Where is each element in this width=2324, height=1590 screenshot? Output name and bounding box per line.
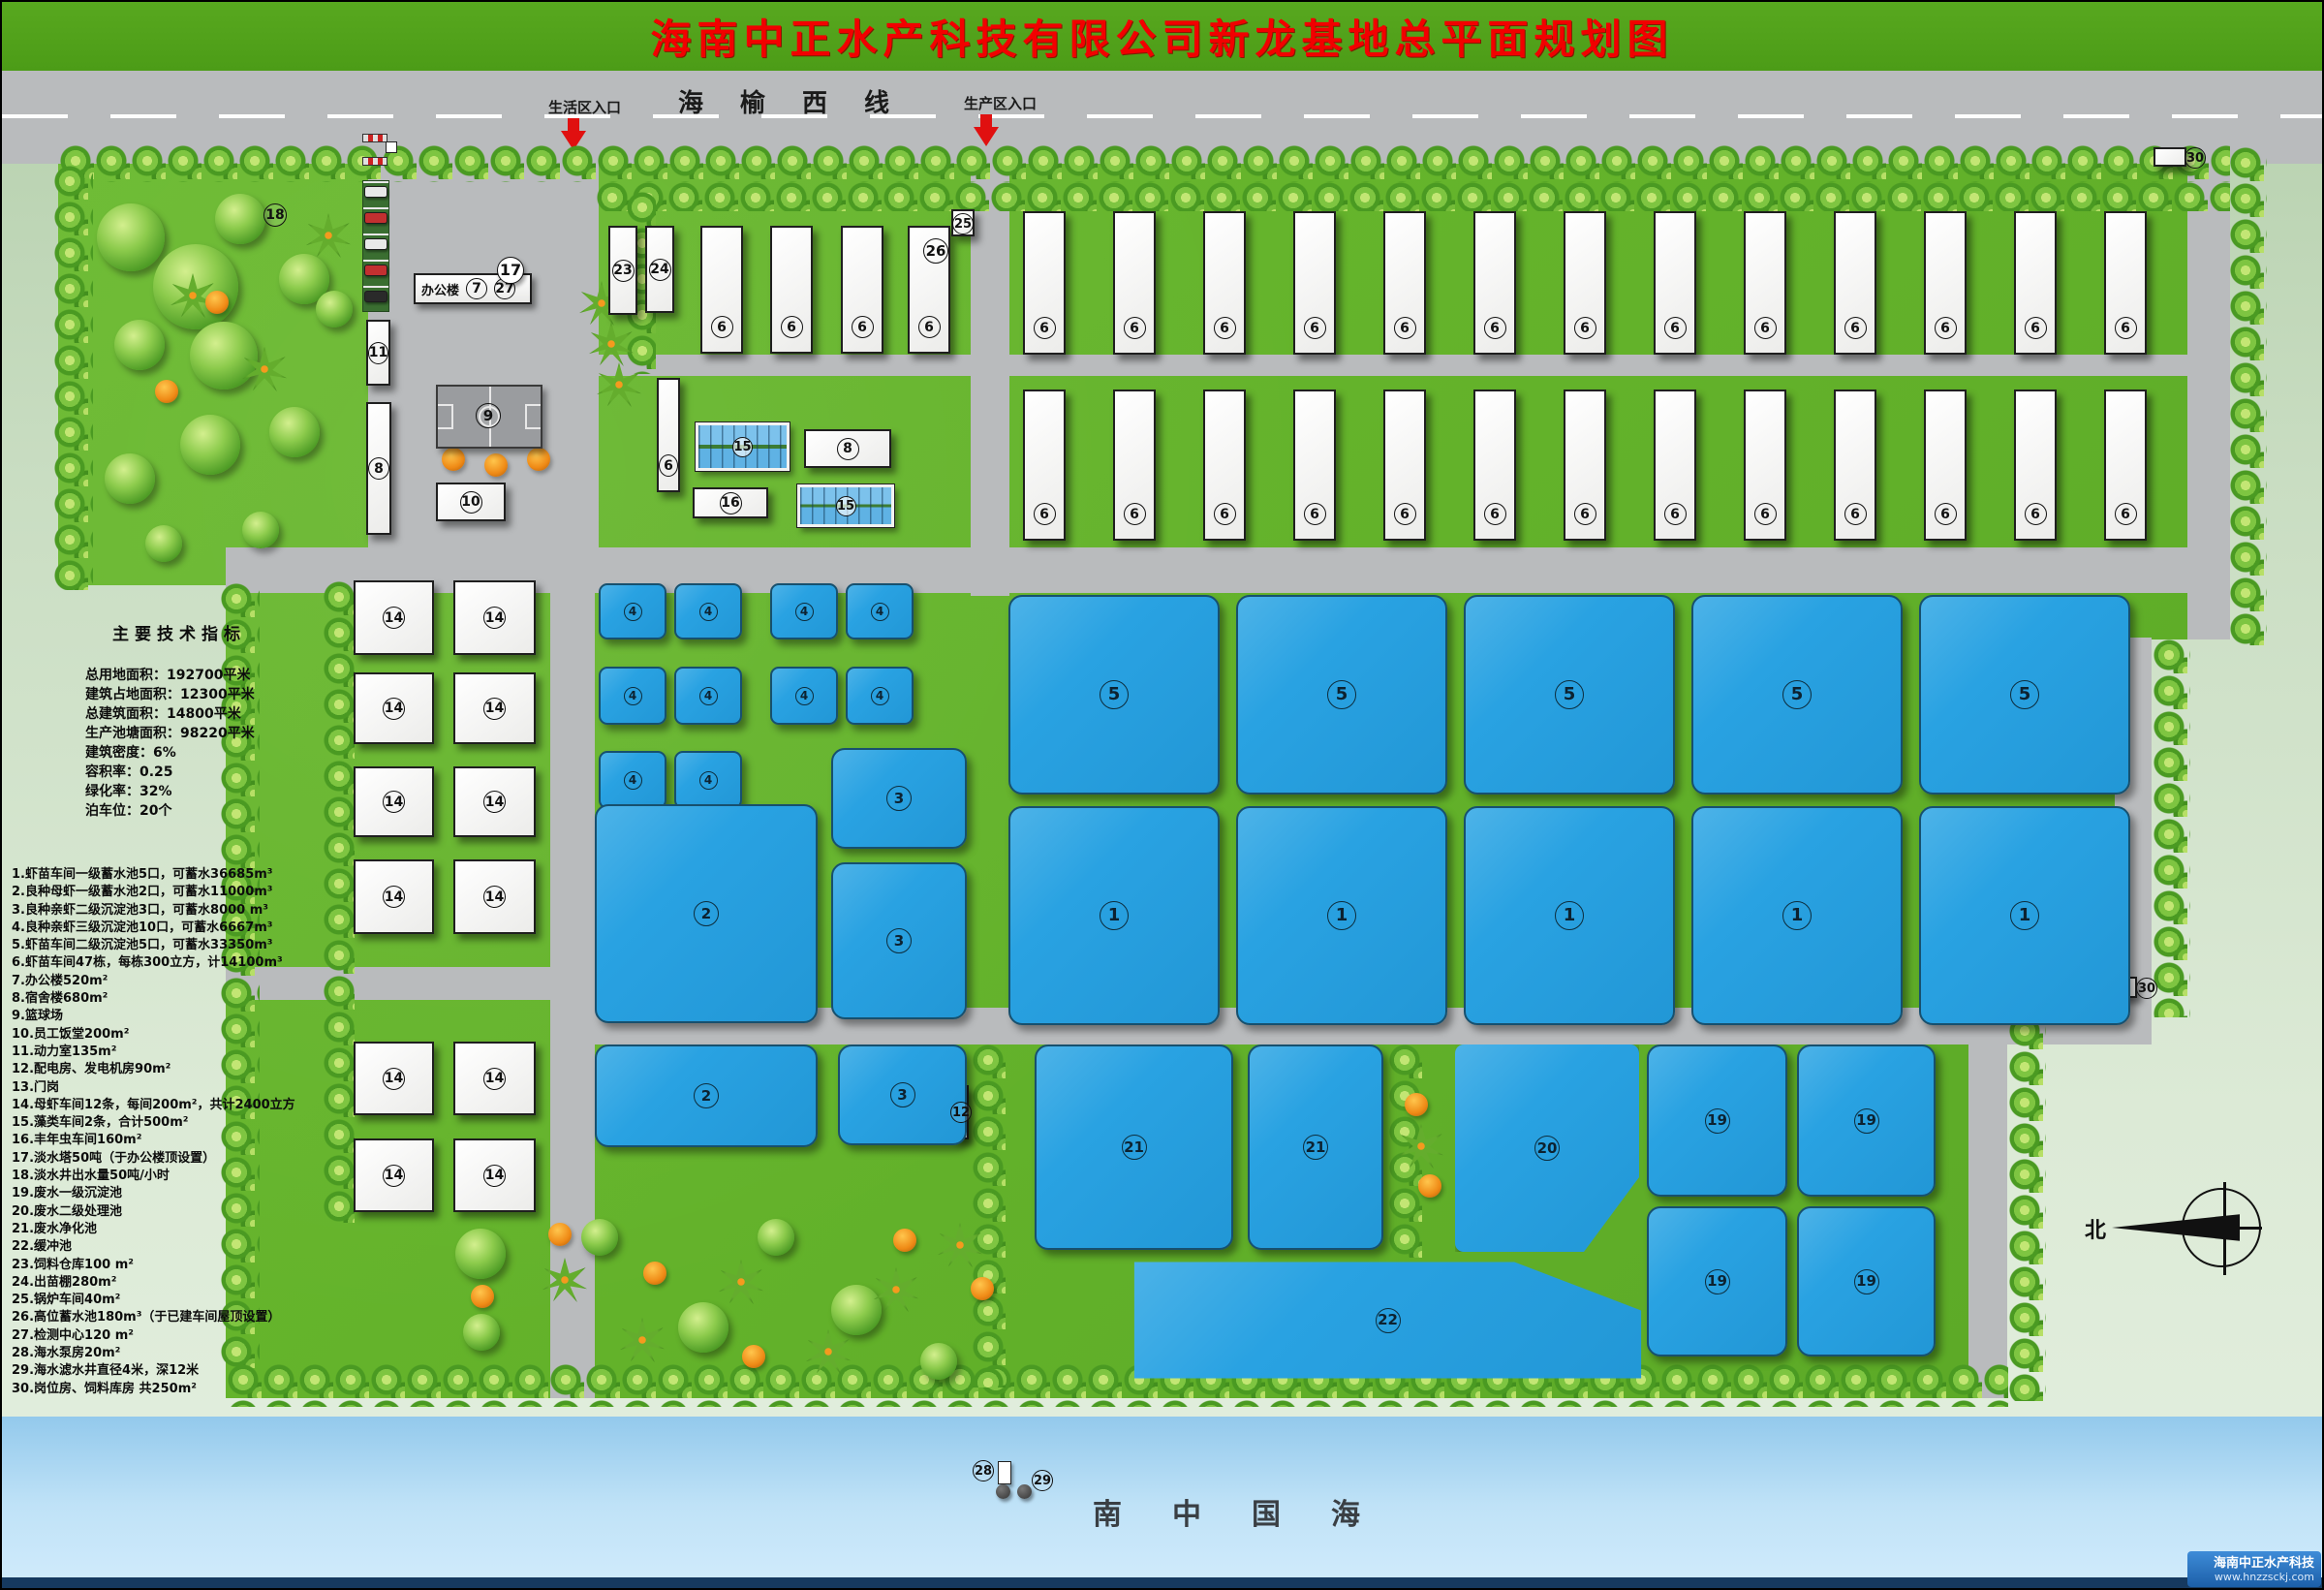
pond-22: 22 <box>1124 1260 1652 1381</box>
number-badge-2: 2 <box>694 1083 719 1108</box>
tech-indicator-line: 总建筑面积：14800平米 <box>85 704 255 724</box>
building-14: 14 <box>453 1042 536 1115</box>
number-badge-15: 15 <box>836 496 856 516</box>
compass-north-label: 北 <box>2085 1213 2106 1244</box>
number-badge-21: 21 <box>1122 1135 1147 1160</box>
legend-item: 24.出苗棚280m² <box>12 1274 295 1292</box>
number-badge-30: 30 <box>2185 147 2206 169</box>
number-badge-23: 23 <box>612 260 635 282</box>
number-badge-4: 4 <box>699 603 718 621</box>
pond-19: 19 <box>1797 1044 1936 1197</box>
building-6: 6 <box>1564 211 1606 355</box>
number-badge-15: 15 <box>732 437 753 457</box>
legend-item: 11.动力室135m² <box>12 1044 295 1061</box>
pond-5: 5 <box>1236 595 1447 795</box>
pond-5: 5 <box>1008 595 1220 795</box>
number-badge-6: 6 <box>2115 317 2137 339</box>
number-badge-6: 6 <box>1754 503 1777 525</box>
building-6: 6 <box>1383 390 1426 541</box>
number-badge-19: 19 <box>1705 1269 1730 1294</box>
legend-item: 8.宿舍楼680m² <box>12 990 295 1008</box>
building-6: 6 <box>2014 390 2057 541</box>
number-badge-4: 4 <box>624 603 642 621</box>
pond-5: 5 <box>1691 595 1903 795</box>
technical-indicators-heading: 主要技术指标 <box>112 620 255 644</box>
number-badge-14: 14 <box>383 1165 405 1187</box>
number-badge-4: 4 <box>624 771 642 790</box>
number-badge-6: 6 <box>1484 503 1506 525</box>
pond-4: 4 <box>674 667 742 725</box>
building-6: 6 <box>1924 390 1967 541</box>
number-badge-4: 4 <box>699 687 718 705</box>
legend-item: 12.配电房、发电机房90m² <box>12 1061 295 1078</box>
legend-item: 4.良种亲虾三级沉淀池10口，可蓄水6667m³ <box>12 920 295 937</box>
number-badge-10: 10 <box>460 491 482 514</box>
tech-indicator-line: 建筑密度：6% <box>85 743 255 763</box>
number-badge-6: 6 <box>1124 317 1146 339</box>
building-6: 6 <box>2104 390 2147 541</box>
legend-item: 25.锅炉车间40m² <box>12 1292 295 1309</box>
building-6: 6 <box>1744 390 1786 541</box>
pond-21: 21 <box>1248 1044 1383 1250</box>
pond-1: 1 <box>1464 806 1675 1025</box>
legend-item: 10.员工饭堂200m² <box>12 1026 295 1044</box>
pond-4: 4 <box>674 583 742 639</box>
number-badge-6: 6 <box>1664 317 1687 339</box>
legend-item: 14.母虾车间12条，每间200m²，共计2400立方 <box>12 1097 295 1114</box>
pond-4: 4 <box>770 667 838 725</box>
number-badge-6: 6 <box>659 454 678 477</box>
legend-item: 5.虾苗车间二级沉淀池5口，可蓄水33350m³ <box>12 937 295 954</box>
building-6: 6 <box>1203 390 1246 541</box>
watermark: 海南中正水产科技 www.hnzzsckj.com <box>2187 1551 2321 1587</box>
compass-needle-icon <box>2112 1213 2240 1242</box>
building-6: 6 <box>700 226 743 354</box>
number-badge-6: 6 <box>1574 317 1596 339</box>
legend-item: 6.虾苗车间47栋，每栋300立方，计14100m³ <box>12 954 295 972</box>
building-11: 11 <box>366 320 390 386</box>
building-6: 6 <box>1473 390 1516 541</box>
legend-item: 17.淡水塔50吨（于办公楼顶设置） <box>12 1150 295 1168</box>
number-badge-4: 4 <box>699 771 718 790</box>
pond-1: 1 <box>1236 806 1447 1025</box>
building-6: 6 <box>1924 211 1967 355</box>
number-badge-6: 6 <box>1214 317 1236 339</box>
tech-indicator-line: 泊车位：20个 <box>85 801 255 821</box>
tech-indicator-line: 绿化率：32% <box>85 782 255 801</box>
marker-28: 28 <box>973 1460 994 1481</box>
legend-item: 1.虾苗车间一级蓄水池5口，可蓄水36685m³ <box>12 866 295 884</box>
building-6: 6 <box>1023 211 1066 355</box>
number-badge-20: 20 <box>1534 1136 1560 1161</box>
building-6: 6 <box>2104 211 2147 355</box>
pond-4: 4 <box>599 751 666 809</box>
number-badge-6: 6 <box>1034 317 1056 339</box>
legend-item: 30.岗位房、饲料库房 共250m² <box>12 1381 295 1398</box>
building-14: 14 <box>453 859 536 934</box>
pond-19: 19 <box>1647 1044 1787 1197</box>
number-badge-24: 24 <box>649 259 671 281</box>
number-badge-6: 6 <box>1844 317 1867 339</box>
number-badge-4: 4 <box>795 687 814 705</box>
building-6: 6 <box>1834 390 1876 541</box>
pond-4: 4 <box>599 667 666 725</box>
number-badge-6: 6 <box>1935 317 1957 339</box>
technical-indicators-lines: 总用地面积：192700平米建筑占地面积：12300平米总建筑面积：14800平… <box>85 666 255 821</box>
number-badge-16: 16 <box>720 492 742 514</box>
building-6: 6 <box>1744 211 1786 355</box>
pond-1: 1 <box>1008 806 1220 1025</box>
building-6: 6 <box>1654 211 1696 355</box>
number-badge-19: 19 <box>1705 1108 1730 1134</box>
number-badge-19: 19 <box>1854 1269 1879 1294</box>
marker-12: 12 <box>950 1102 972 1123</box>
number-badge-5: 5 <box>2010 680 2039 709</box>
pond-5: 5 <box>1464 595 1675 795</box>
legend-item: 21.废水净化池 <box>12 1221 295 1238</box>
number-badge-6: 6 <box>1935 503 1957 525</box>
pond-3: 3 <box>838 1044 967 1145</box>
building-14: 14 <box>453 766 536 837</box>
number-badge-5: 5 <box>1555 680 1584 709</box>
number-badge-5: 5 <box>1327 680 1356 709</box>
number-badge-14: 14 <box>483 607 506 629</box>
marker-29: 29 <box>1032 1470 1053 1491</box>
number-badge-17: 17 <box>497 257 524 284</box>
algae-workshop-15: 15 <box>696 422 790 471</box>
building-14: 14 <box>354 1138 434 1212</box>
number-badge-8: 8 <box>368 457 389 480</box>
marker-30: 30 <box>2185 147 2206 169</box>
number-badge-6: 6 <box>1304 317 1326 339</box>
number-badge-6: 6 <box>2025 317 2047 339</box>
legend-item: 13.门岗 <box>12 1079 295 1097</box>
pond-19: 19 <box>1647 1206 1787 1356</box>
marker-26: 26 <box>923 238 948 264</box>
number-badge-6: 6 <box>1394 503 1416 525</box>
number-badge-4: 4 <box>624 687 642 705</box>
tech-indicator-line: 建筑占地面积：12300平米 <box>85 685 255 704</box>
number-badge-1: 1 <box>1327 901 1356 930</box>
number-badge-4: 4 <box>871 687 889 705</box>
building-6: 6 <box>1383 211 1426 355</box>
marker-17: 17 <box>497 257 524 284</box>
number-badge-14: 14 <box>383 886 405 908</box>
legend-item: 28.海水泵房20m² <box>12 1345 295 1362</box>
pond-4: 4 <box>674 751 742 809</box>
pond-3: 3 <box>831 748 967 849</box>
pond-2: 2 <box>595 1044 818 1147</box>
number-badge-2: 2 <box>694 901 719 926</box>
page-title: 海南中正水产科技有限公司新龙基地总平面规划图 <box>650 7 1673 66</box>
building-6: 6 <box>1113 390 1156 541</box>
number-badge-6: 6 <box>1484 317 1506 339</box>
marker-25: 25 <box>952 213 974 234</box>
number-badge-29: 29 <box>1032 1470 1053 1491</box>
number-badge-6: 6 <box>1754 317 1777 339</box>
legend-item: 3.良种亲虾二级沉淀池3口，可蓄水8000 m³ <box>12 902 295 920</box>
building-aux <box>2154 147 2186 167</box>
building-14: 14 <box>354 580 434 655</box>
building-6: 6 <box>1113 211 1156 355</box>
number-badge-22: 22 <box>1376 1308 1401 1333</box>
pond-1: 1 <box>1691 806 1903 1025</box>
tech-indicator-line: 总用地面积：192700平米 <box>85 666 255 685</box>
pond-3: 3 <box>831 862 967 1019</box>
legend-item: 23.饲料仓库100 m² <box>12 1257 295 1274</box>
number-badge-6: 6 <box>1844 503 1867 525</box>
number-badge-6: 6 <box>2115 503 2137 525</box>
number-badge-6: 6 <box>2025 503 2047 525</box>
number-badge-14: 14 <box>383 1068 405 1090</box>
sea-filter-well <box>996 1484 1010 1499</box>
number-badge-6: 6 <box>1124 503 1146 525</box>
legend-item: 19.废水一级沉淀池 <box>12 1185 295 1202</box>
number-badge-21: 21 <box>1303 1135 1328 1160</box>
number-badge-1: 1 <box>1555 901 1584 930</box>
building-6: 6 <box>2014 211 2057 355</box>
legend-item: 18.淡水井出水量50吨/小时 <box>12 1168 295 1185</box>
number-badge-6: 6 <box>1034 503 1056 525</box>
legend-item: 7.办公楼520m² <box>12 973 295 990</box>
tech-indicator-line: 生产池塘面积：98220平米 <box>85 724 255 743</box>
building-6: 6 <box>770 226 813 354</box>
number-badge-8: 8 <box>837 438 859 460</box>
building-14: 14 <box>354 766 434 837</box>
sea-filter-well <box>1017 1484 1032 1499</box>
sea-pump-house <box>998 1461 1011 1484</box>
building-24: 24 <box>645 226 674 313</box>
legend-item: 2.良种母虾一级蓄水池2口，可蓄水11000m³ <box>12 884 295 901</box>
building-14: 14 <box>354 1042 434 1115</box>
number-badge-25: 25 <box>952 213 974 234</box>
number-badge-14: 14 <box>483 1068 506 1090</box>
building-14: 14 <box>354 859 434 934</box>
number-badge-6: 6 <box>1214 503 1236 525</box>
algae-workshop-15: 15 <box>797 484 894 527</box>
legend-item: 20.废水二级处理池 <box>12 1203 295 1221</box>
watermark-url: www.hnzzsckj.com <box>2215 1571 2314 1583</box>
pond-4: 4 <box>770 583 838 639</box>
pond-20: 20 <box>1455 1044 1639 1252</box>
building-14: 14 <box>453 1138 536 1212</box>
plan-layer: 1181023246666681666666666666666666666666… <box>0 0 2324 1590</box>
pond-5: 5 <box>1919 595 2130 795</box>
building-16: 16 <box>693 487 768 518</box>
building-6: 6 <box>1473 211 1516 355</box>
building-6: 6 <box>841 226 883 354</box>
number-badge-3: 3 <box>886 928 912 953</box>
legend-item: 22.缓冲池 <box>12 1238 295 1256</box>
number-badge-1: 1 <box>1782 901 1812 930</box>
number-badge-9: 9 <box>476 403 501 428</box>
building-14: 14 <box>453 580 536 655</box>
building-6: 6 <box>657 378 680 492</box>
marker-30: 30 <box>2136 978 2157 999</box>
number-badge-3: 3 <box>890 1082 915 1107</box>
building-6: 6 <box>1023 390 1066 541</box>
pond-4: 4 <box>846 667 914 725</box>
number-badge-6: 6 <box>1394 317 1416 339</box>
building-14: 14 <box>453 672 536 744</box>
building-10: 10 <box>436 483 506 521</box>
pond-2: 2 <box>595 804 818 1023</box>
number-badge-26: 26 <box>923 238 948 264</box>
number-badge-6: 6 <box>711 316 733 338</box>
sea-bottom-strip <box>2 1577 2322 1588</box>
number-badge-6: 6 <box>918 316 941 338</box>
building-14: 14 <box>354 672 434 744</box>
watermark-company: 海南中正水产科技 <box>2214 1556 2314 1571</box>
legend-item: 26.高位蓄水池180m³（于已建车间屋顶设置） <box>12 1309 295 1326</box>
number-badge-5: 5 <box>1100 680 1129 709</box>
legend-list: 1.虾苗车间一级蓄水池5口，可蓄水36685m³2.良种母虾一级蓄水池2口，可蓄… <box>12 866 295 1398</box>
number-badge-1: 1 <box>2010 901 2039 930</box>
number-badge-19: 19 <box>1854 1108 1879 1134</box>
number-badge-3: 3 <box>886 786 912 811</box>
number-badge-14: 14 <box>383 698 405 720</box>
number-badge-4: 4 <box>795 603 814 621</box>
number-badge-14: 14 <box>383 791 405 813</box>
number-badge-14: 14 <box>483 791 506 813</box>
number-badge-6: 6 <box>852 316 874 338</box>
number-badge-14: 14 <box>483 886 506 908</box>
number-badge-6: 6 <box>781 316 803 338</box>
building-6: 6 <box>1834 211 1876 355</box>
building-6: 6 <box>1654 390 1696 541</box>
building-8: 8 <box>804 429 891 468</box>
building-8: 8 <box>366 402 391 535</box>
site-plan-canvas: 海榆西线 生活区入口 生产区入口 <box>0 0 2324 1590</box>
compass: 北 <box>2085 1184 2264 1273</box>
technical-indicators: 主要技术指标 总用地面积：192700平米建筑占地面积：12300平米总建筑面积… <box>85 620 255 821</box>
number-badge-18: 18 <box>263 203 287 227</box>
tech-indicator-line: 容积率：0.25 <box>85 763 255 782</box>
sea-label: 南中国海 <box>1093 1490 1410 1533</box>
number-badge-6: 6 <box>1304 503 1326 525</box>
title-bar: 海南中正水产科技有限公司新龙基地总平面规划图 <box>2 2 2322 71</box>
pond-4: 4 <box>599 583 666 639</box>
building-6: 6 <box>1293 390 1336 541</box>
number-badge-14: 14 <box>483 1165 506 1187</box>
number-badge-14: 14 <box>383 607 405 629</box>
number-badge-6: 6 <box>1664 503 1687 525</box>
legend-item: 27.检测中心120 m² <box>12 1327 295 1345</box>
number-badge-30: 30 <box>2136 978 2157 999</box>
building-23: 23 <box>608 226 637 315</box>
legend-item: 9.篮球场 <box>12 1008 295 1025</box>
pond-21: 21 <box>1035 1044 1233 1250</box>
legend-item: 16.丰年虫车间160m² <box>12 1132 295 1149</box>
marker-9: 9 <box>476 403 501 428</box>
legend-item: 15.藻类车间2条，合计500m² <box>12 1114 295 1132</box>
marker-18: 18 <box>263 203 287 227</box>
building-6: 6 <box>1293 211 1336 355</box>
number-badge-14: 14 <box>483 698 506 720</box>
number-badge-6: 6 <box>1574 503 1596 525</box>
pond-4: 4 <box>846 583 914 639</box>
pond-19: 19 <box>1797 1206 1936 1356</box>
number-badge-28: 28 <box>973 1460 994 1481</box>
number-badge-1: 1 <box>1100 901 1129 930</box>
pond-1: 1 <box>1919 806 2130 1025</box>
legend-item: 29.海水滤水井直径4米，深12米 <box>12 1362 295 1380</box>
number-badge-5: 5 <box>1782 680 1812 709</box>
number-badge-11: 11 <box>368 342 388 364</box>
building-6: 6 <box>1564 390 1606 541</box>
building-6: 6 <box>1203 211 1246 355</box>
number-badge-12: 12 <box>950 1102 972 1123</box>
number-badge-4: 4 <box>871 603 889 621</box>
